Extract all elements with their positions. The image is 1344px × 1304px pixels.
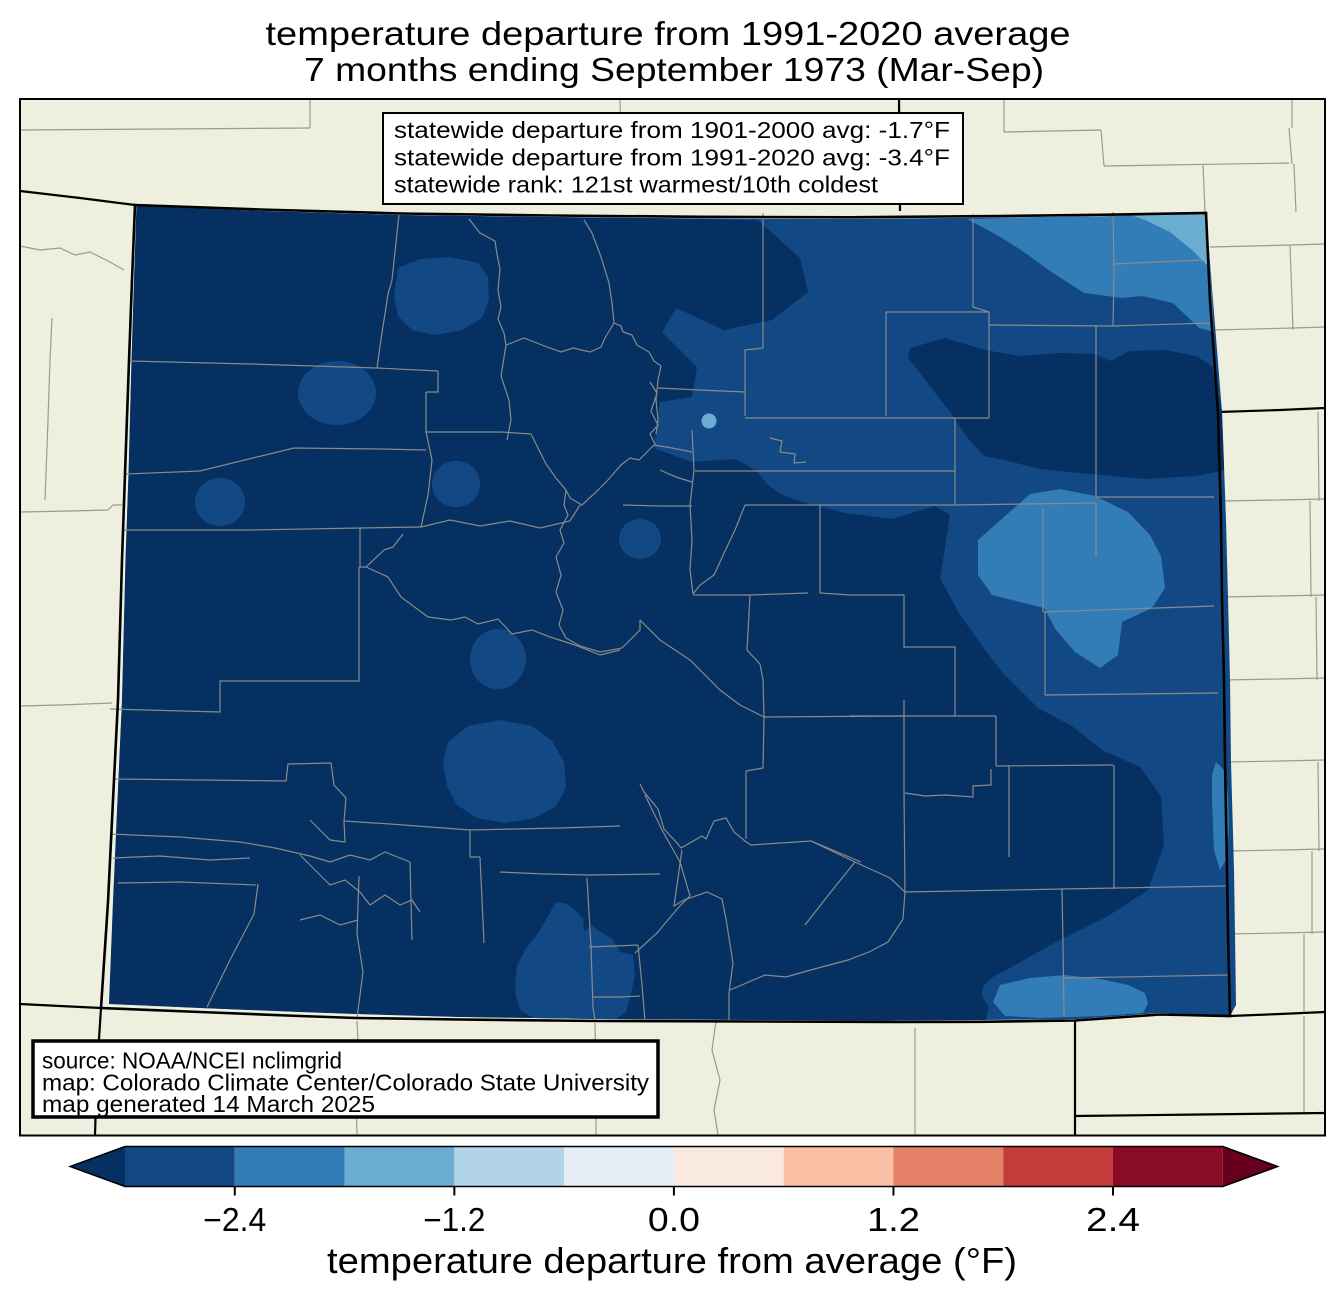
- svg-text:2.4: 2.4: [1086, 1201, 1140, 1238]
- svg-text:statewide departure from 1901-: statewide departure from 1901-2000 avg: …: [394, 117, 950, 143]
- svg-text:−1.2: −1.2: [423, 1201, 485, 1238]
- svg-text:map generated 14 March 2025: map generated 14 March 2025: [42, 1091, 375, 1117]
- svg-text:temperature departure from 199: temperature departure from 1991-2020 ave…: [266, 16, 1071, 53]
- svg-text:statewide rank: 121st warmest/: statewide rank: 121st warmest/10th colde…: [394, 172, 878, 198]
- svg-text:7 months ending September 1973: 7 months ending September 1973 (Mar-Sep): [304, 52, 1044, 89]
- svg-text:1.2: 1.2: [867, 1201, 920, 1238]
- svg-text:−2.4: −2.4: [203, 1201, 266, 1238]
- svg-text:statewide departure from 1991-: statewide departure from 1991-2020 avg: …: [394, 145, 950, 171]
- svg-text:0.0: 0.0: [648, 1201, 700, 1238]
- svg-text:temperature departure from ave: temperature departure from average (°F): [327, 1240, 1017, 1281]
